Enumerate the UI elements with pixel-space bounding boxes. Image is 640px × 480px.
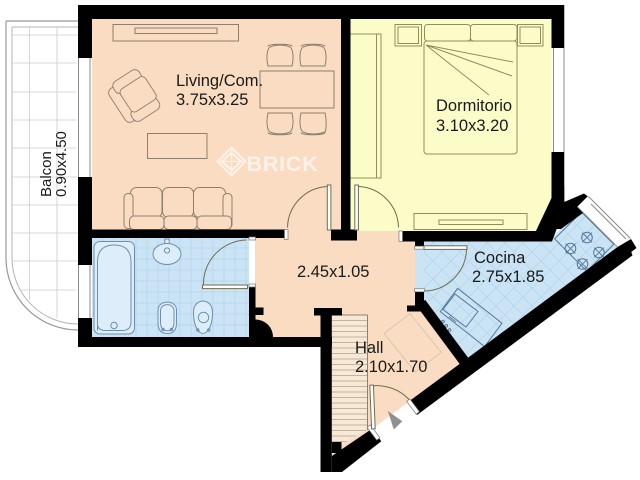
svg-text:BRICK: BRICK bbox=[247, 152, 319, 176]
svg-text:2.75x1.85: 2.75x1.85 bbox=[472, 268, 544, 286]
svg-text:Hall: Hall bbox=[355, 339, 383, 357]
svg-text:2.45x1.05: 2.45x1.05 bbox=[297, 263, 369, 281]
svg-text:Cocina: Cocina bbox=[474, 249, 526, 267]
svg-text:Dormitorio: Dormitorio bbox=[436, 97, 512, 115]
svg-text:3.10x3.20: 3.10x3.20 bbox=[436, 117, 508, 135]
svg-text:Living/Com.: Living/Com. bbox=[176, 72, 263, 90]
svg-text:2.10x1.70: 2.10x1.70 bbox=[355, 358, 427, 376]
svg-text:3.75x3.25: 3.75x3.25 bbox=[176, 91, 248, 109]
svg-text:0.90x4.50: 0.90x4.50 bbox=[53, 131, 70, 197]
